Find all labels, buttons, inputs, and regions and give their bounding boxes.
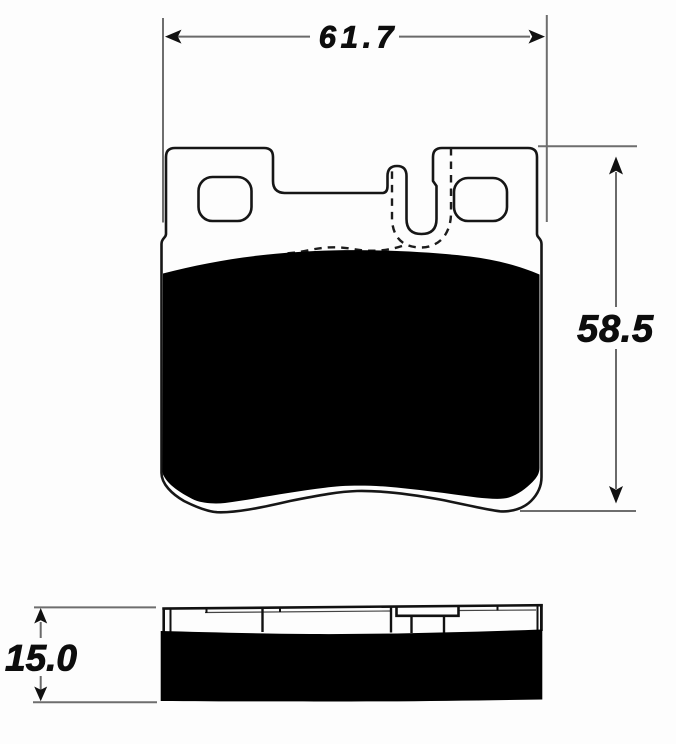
svg-text:61.7: 61.7 — [319, 19, 399, 54]
svg-text:58.5: 58.5 — [577, 309, 654, 351]
svg-text:15.0: 15.0 — [5, 638, 77, 679]
